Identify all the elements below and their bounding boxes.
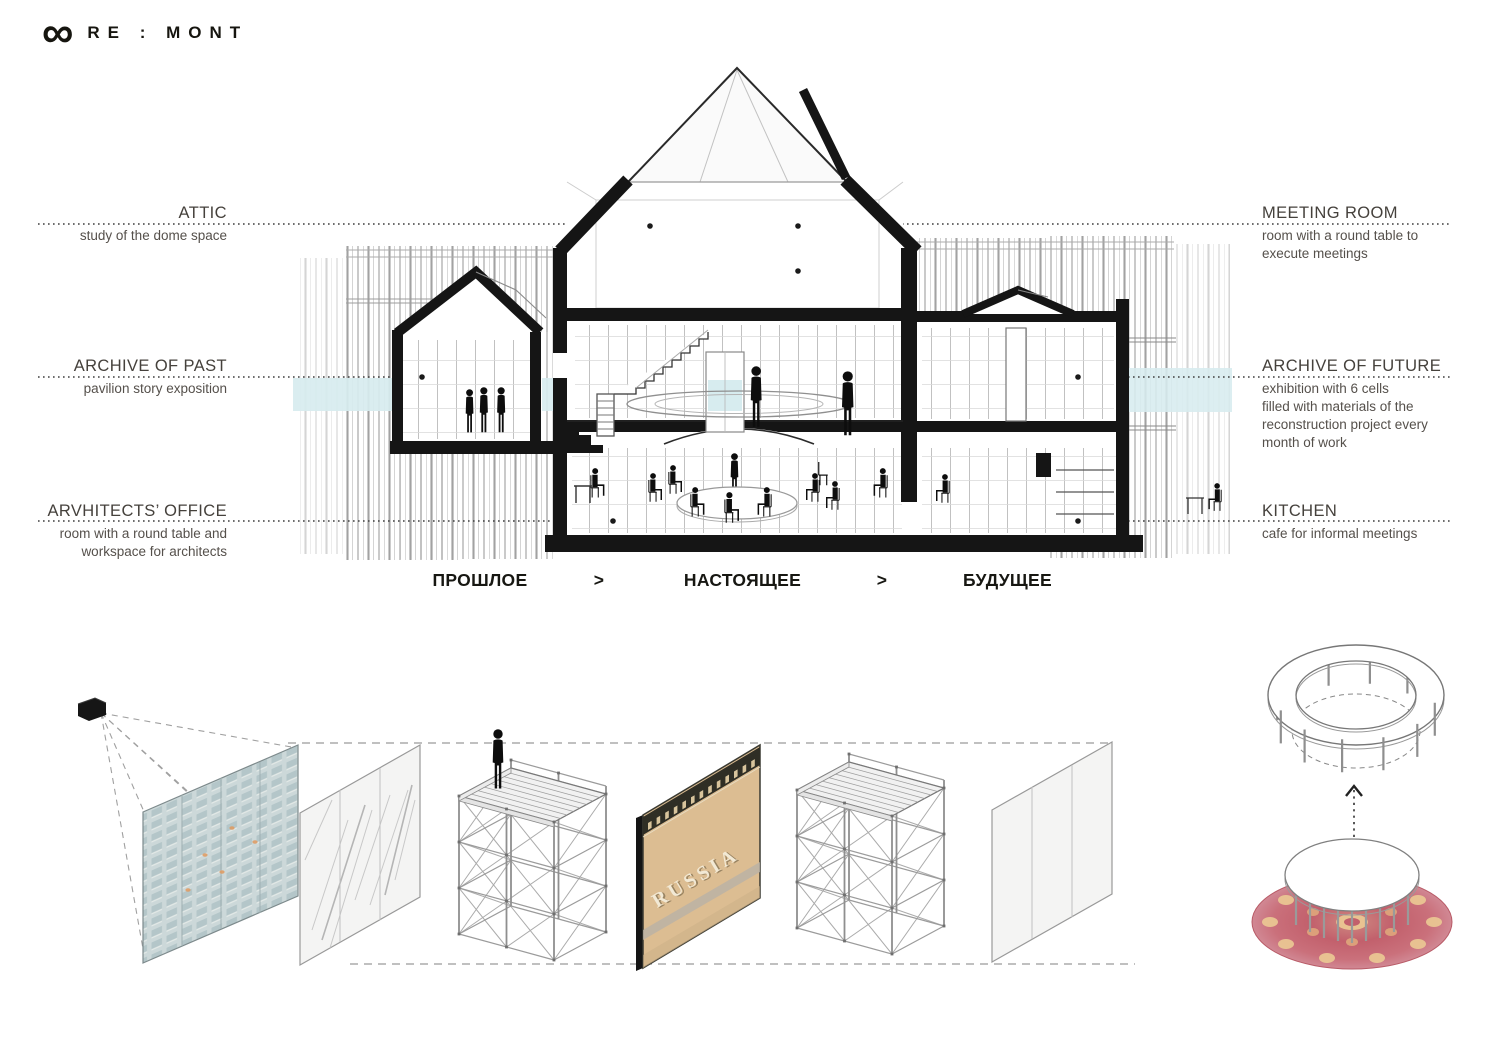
timeline-present: НАСТОЯЩЕЕ [655, 570, 830, 591]
label-meeting-room-desc-line: room with a round table to [1262, 227, 1477, 245]
kitchen-grid [922, 448, 1118, 533]
label-architects-office-title: ARVHITECTS’ OFFICE [37, 502, 227, 520]
timeline-future: БУДУЩЕЕ [935, 570, 1080, 591]
label-archive-of-future-title: ARCHIVE OF FUTURE [1262, 357, 1477, 375]
label-archive-of-past: ARCHIVE OF PAST pavilion story expositio… [37, 357, 227, 398]
round-table-carpet-model [1252, 839, 1452, 969]
marble-panel-1 [300, 745, 420, 965]
label-kitchen: KITCHEN cafe for informal meetings [1262, 502, 1477, 543]
label-kitchen-title: KITCHEN [1262, 502, 1477, 520]
facade-panel [143, 745, 298, 963]
label-architects-office-desc-line: workspace for architects [37, 543, 227, 561]
label-meeting-room-desc-line: execute meetings [1262, 245, 1477, 263]
label-archive-of-future-desc-line: exhibition with 6 cells [1262, 380, 1477, 398]
scaffold-model-2 [796, 753, 946, 956]
label-archive-of-future-desc-line: filled with materials of the [1262, 398, 1477, 416]
timeline-arrow-icon: > [585, 570, 613, 591]
label-archive-of-past-title: ARCHIVE OF PAST [37, 357, 227, 375]
tabletop [1285, 839, 1419, 911]
label-architects-office: ARVHITECTS’ OFFICE room with a round tab… [37, 502, 227, 561]
marble-panel-2 [992, 742, 1112, 962]
label-archive-of-future-desc-line: reconstruction project every [1262, 416, 1477, 434]
label-attic-desc: study of the dome space [37, 227, 227, 245]
ring-table-model [1268, 645, 1444, 772]
label-meeting-room-title: MEETING ROOM [1262, 204, 1477, 222]
label-meeting-room: MEETING ROOM room with a round table to … [1262, 204, 1477, 263]
infinity-logo-icon: ∞ [42, 16, 71, 50]
logo-name: RE : MONT [87, 23, 248, 43]
label-archive-of-past-desc: pavilion story exposition [37, 380, 227, 398]
label-attic: ATTIC study of the dome space [37, 204, 227, 245]
assembly-sequence: RUSSIA RUSSIA [78, 698, 1135, 971]
timeline-past: ПРОШЛОЕ [415, 570, 545, 591]
presentation-board: RUSSIA RUSSIA [0, 0, 1500, 1060]
russia-panel: RUSSIA RUSSIA [636, 745, 760, 971]
label-archive-of-future-desc-line: month of work [1262, 434, 1477, 452]
label-kitchen-desc: cafe for informal meetings [1262, 525, 1477, 543]
timeline-arrow-icon: > [868, 570, 896, 591]
logo: ∞ RE : MONT [42, 16, 248, 50]
label-attic-title: ATTIC [37, 204, 227, 222]
scaffold-model-1 [458, 729, 608, 961]
label-archive-of-future: ARCHIVE OF FUTURE exhibition with 6 cell… [1262, 357, 1477, 452]
label-architects-office-desc-line: room with a round table and [37, 525, 227, 543]
